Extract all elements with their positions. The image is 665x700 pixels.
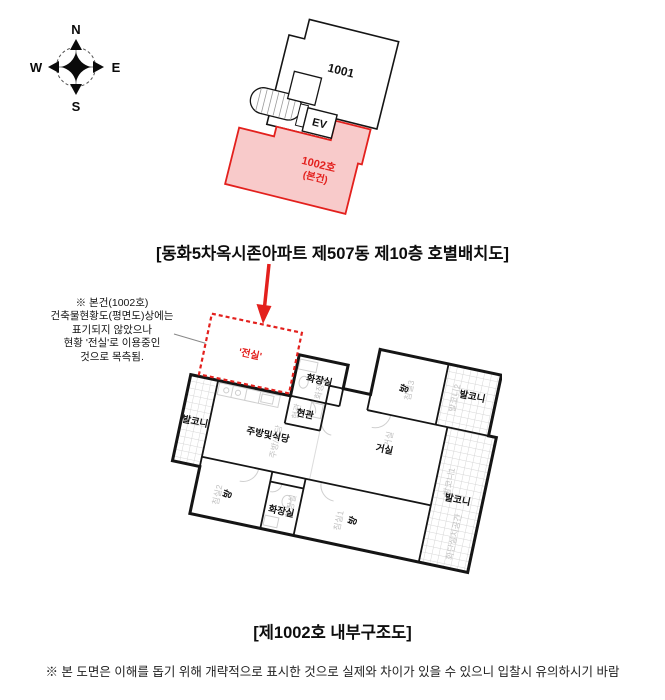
unit-1002-floor-plan: 침실3 발코니2 침실2 침실1 발코니1 화단설치공간 주방/식당 거실 화장… — [150, 295, 502, 585]
north-arrow-icon — [70, 39, 82, 50]
kitchen-label: 주방및식당 — [245, 425, 290, 446]
underlay-bedroom1-label: 침실1 — [332, 509, 346, 531]
west-arrow-icon — [48, 61, 59, 73]
compass-star-icon — [61, 52, 91, 82]
auction-floorplan-page: N S W E EV 1001 1002호 (본건) [동화5차옥시존아파트 제… — [0, 0, 665, 700]
kitchen-living-divider — [310, 431, 320, 480]
floor-plan-caption: [제1002호 내부구조도] — [0, 619, 665, 643]
south-arrow-icon — [70, 84, 82, 95]
east-arrow-icon — [93, 61, 104, 73]
compass-rose: N S W E — [26, 10, 126, 125]
floor-unit-layout-diagram: EV 1001 1002호 (본건) — [220, 14, 435, 229]
compass-east-label: E — [112, 60, 121, 75]
room-bottom-right-label: 방 — [346, 514, 361, 527]
compass-north-label: N — [71, 22, 80, 37]
compass-south-label: S — [72, 99, 81, 114]
common-room-box — [288, 71, 322, 105]
unit-layout-caption: [동화5차옥시존아파트 제507동 제10층 호별배치도] — [0, 240, 665, 264]
disclaimer-text: ※ 본 도면은 이해를 돕기 위해 개략적으로 표시한 것으로 실제와 차이가 … — [0, 661, 665, 680]
bathroom-top-label: 화장실 — [305, 372, 333, 389]
compass-west-label: W — [30, 60, 43, 75]
